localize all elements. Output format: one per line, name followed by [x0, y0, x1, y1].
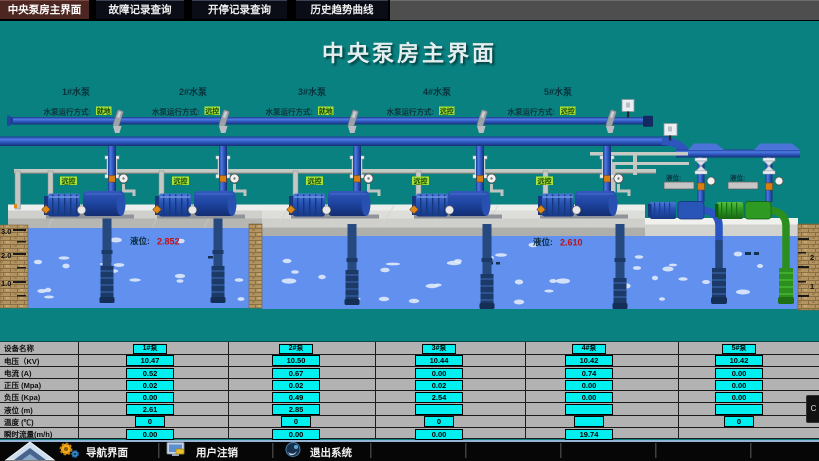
svg-text:水泵运行方式:: 水泵运行方式:	[266, 107, 314, 117]
svg-text:2.852: 2.852	[157, 237, 180, 247]
svg-text:远控: 远控	[205, 107, 219, 116]
svg-text:水泵运行方式:: 水泵运行方式:	[387, 107, 435, 117]
svg-text:2.610: 2.610	[560, 238, 583, 248]
svg-text:水泵运行方式:: 水泵运行方式:	[152, 107, 200, 117]
svg-text:远控: 远控	[308, 177, 322, 186]
svg-text:远控: 远控	[414, 177, 428, 186]
svg-text:远控: 远控	[62, 177, 76, 186]
svg-text:远控: 远控	[174, 177, 188, 186]
svg-text:远控: 远控	[440, 107, 454, 116]
svg-text:液位:: 液位:	[533, 237, 553, 247]
svg-text:2.0: 2.0	[1, 251, 11, 260]
svg-text:水泵运行方式:: 水泵运行方式:	[508, 107, 556, 117]
svg-text:2: 2	[810, 253, 814, 262]
svg-text:2#水泵: 2#水泵	[179, 86, 208, 97]
svg-text:就地: 就地	[319, 107, 333, 116]
svg-text:水泵运行方式:: 水泵运行方式:	[44, 107, 92, 117]
svg-text:远控: 远控	[538, 177, 552, 186]
svg-text:3.0: 3.0	[1, 227, 11, 236]
svg-text:3#水泵: 3#水泵	[298, 86, 327, 97]
svg-text:液位:: 液位:	[730, 173, 745, 182]
svg-text:4#水泵: 4#水泵	[423, 86, 452, 97]
svg-text:1#水泵: 1#水泵	[62, 86, 91, 97]
svg-text:液位:: 液位:	[666, 173, 681, 182]
svg-text:1: 1	[810, 282, 814, 291]
svg-text:就地: 就地	[97, 107, 111, 116]
svg-text:液位:: 液位:	[130, 236, 150, 246]
svg-text:5#水泵: 5#水泵	[544, 86, 573, 97]
svg-text:1.0: 1.0	[1, 279, 11, 288]
svg-text:远控: 远控	[561, 107, 575, 116]
